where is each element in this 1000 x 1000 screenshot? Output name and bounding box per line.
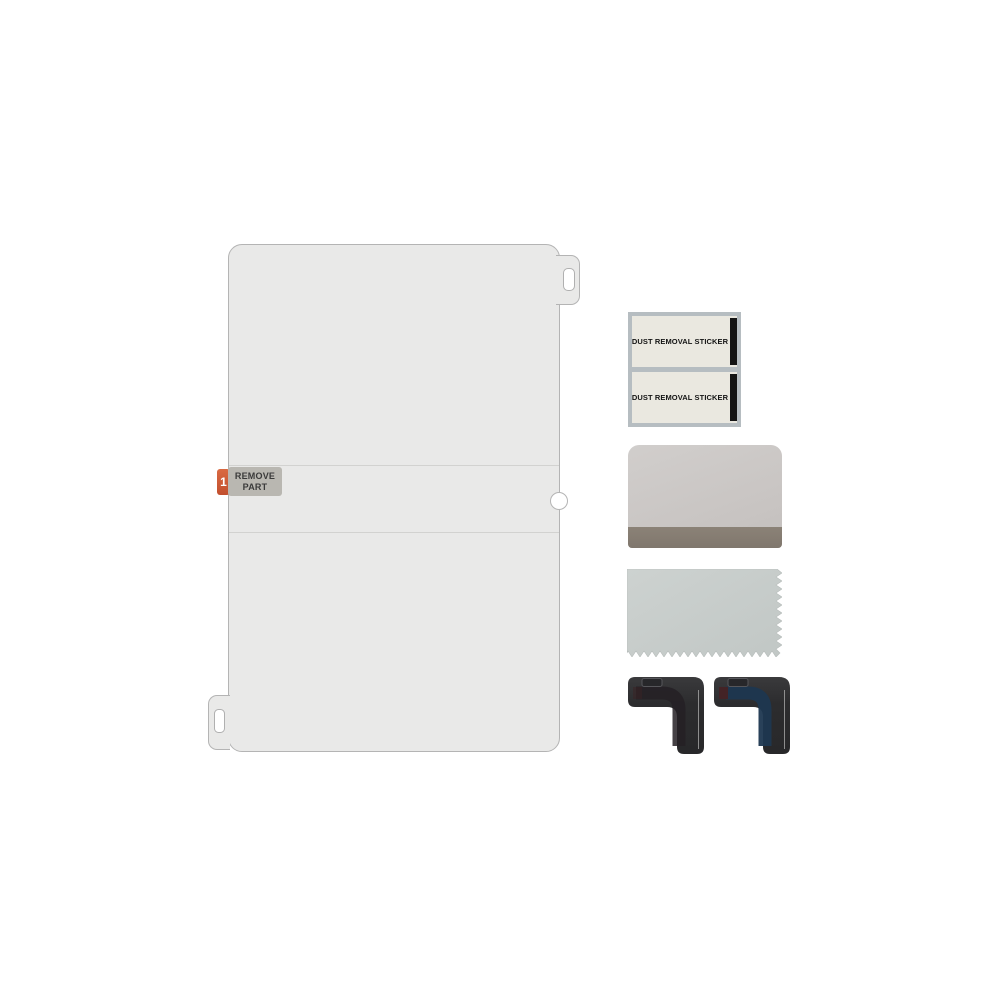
remove-part-label: REMOVE PART xyxy=(228,467,282,496)
tab-slot-hole xyxy=(214,709,225,733)
product-photo: 1 REMOVE PART DUST REMOVAL STICKER DUST … xyxy=(0,0,1000,1000)
corner-guide-left xyxy=(628,677,704,754)
screen-protector-film xyxy=(228,244,560,752)
guide-stripe-end-maroon xyxy=(719,687,728,699)
cleaning-cloth xyxy=(627,569,782,657)
film-section-line xyxy=(229,465,559,466)
sticker-label: DUST REMOVAL STICKER xyxy=(632,316,728,367)
remove-part-line2: PART xyxy=(243,482,268,493)
guide-top-clip xyxy=(642,679,662,687)
sticker-black-stripe xyxy=(730,374,737,421)
guide-top-clip xyxy=(728,679,748,687)
tab-slot-hole xyxy=(563,268,575,291)
dust-removal-sticker-sheet: DUST REMOVAL STICKER DUST REMOVAL STICKE… xyxy=(628,312,741,427)
remove-part-line1: REMOVE xyxy=(235,471,275,482)
dust-removal-sticker: DUST REMOVAL STICKER xyxy=(632,316,737,367)
film-pull-tab-top xyxy=(556,255,580,305)
squeegee-card xyxy=(628,445,782,548)
dust-removal-sticker: DUST REMOVAL STICKER xyxy=(632,372,737,423)
film-camera-notch xyxy=(550,492,568,510)
guide-stripe-end xyxy=(633,687,642,699)
sticker-black-stripe xyxy=(730,318,737,365)
film-pull-tab-bottom xyxy=(208,695,230,750)
film-section-line xyxy=(229,532,559,533)
corner-guide-right xyxy=(714,677,790,754)
sticker-label: DUST REMOVAL STICKER xyxy=(632,372,728,423)
squeegee-felt-edge xyxy=(628,527,782,548)
